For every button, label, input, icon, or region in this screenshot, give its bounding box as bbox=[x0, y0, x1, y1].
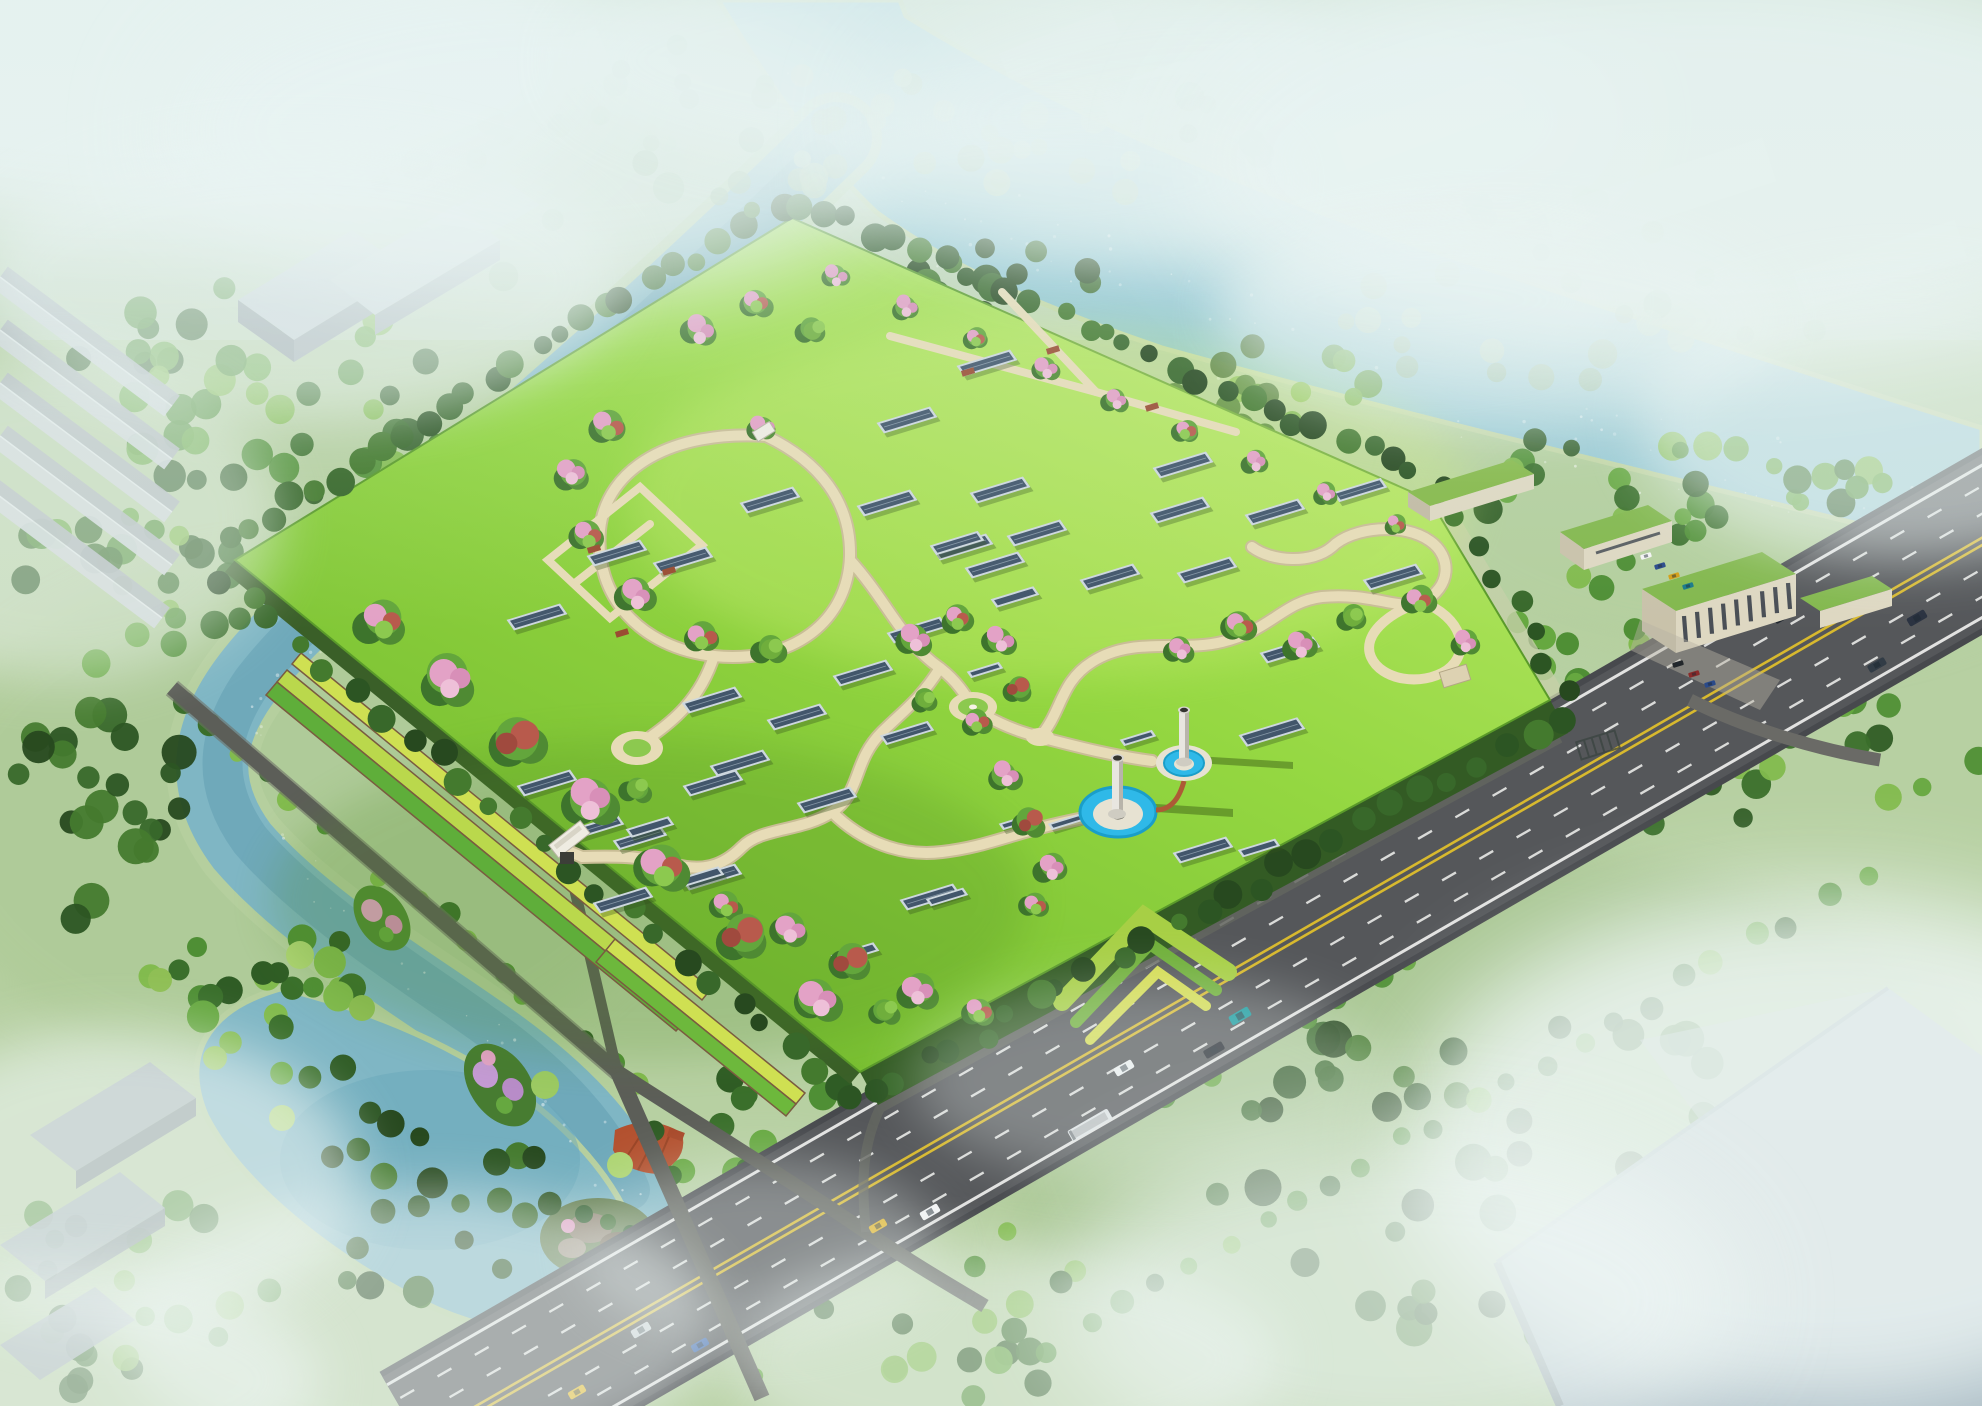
scene-svg bbox=[0, 0, 1982, 1406]
aerial-rendering-canvas bbox=[0, 0, 1982, 1406]
atmospheric-haze bbox=[0, 0, 1982, 1406]
